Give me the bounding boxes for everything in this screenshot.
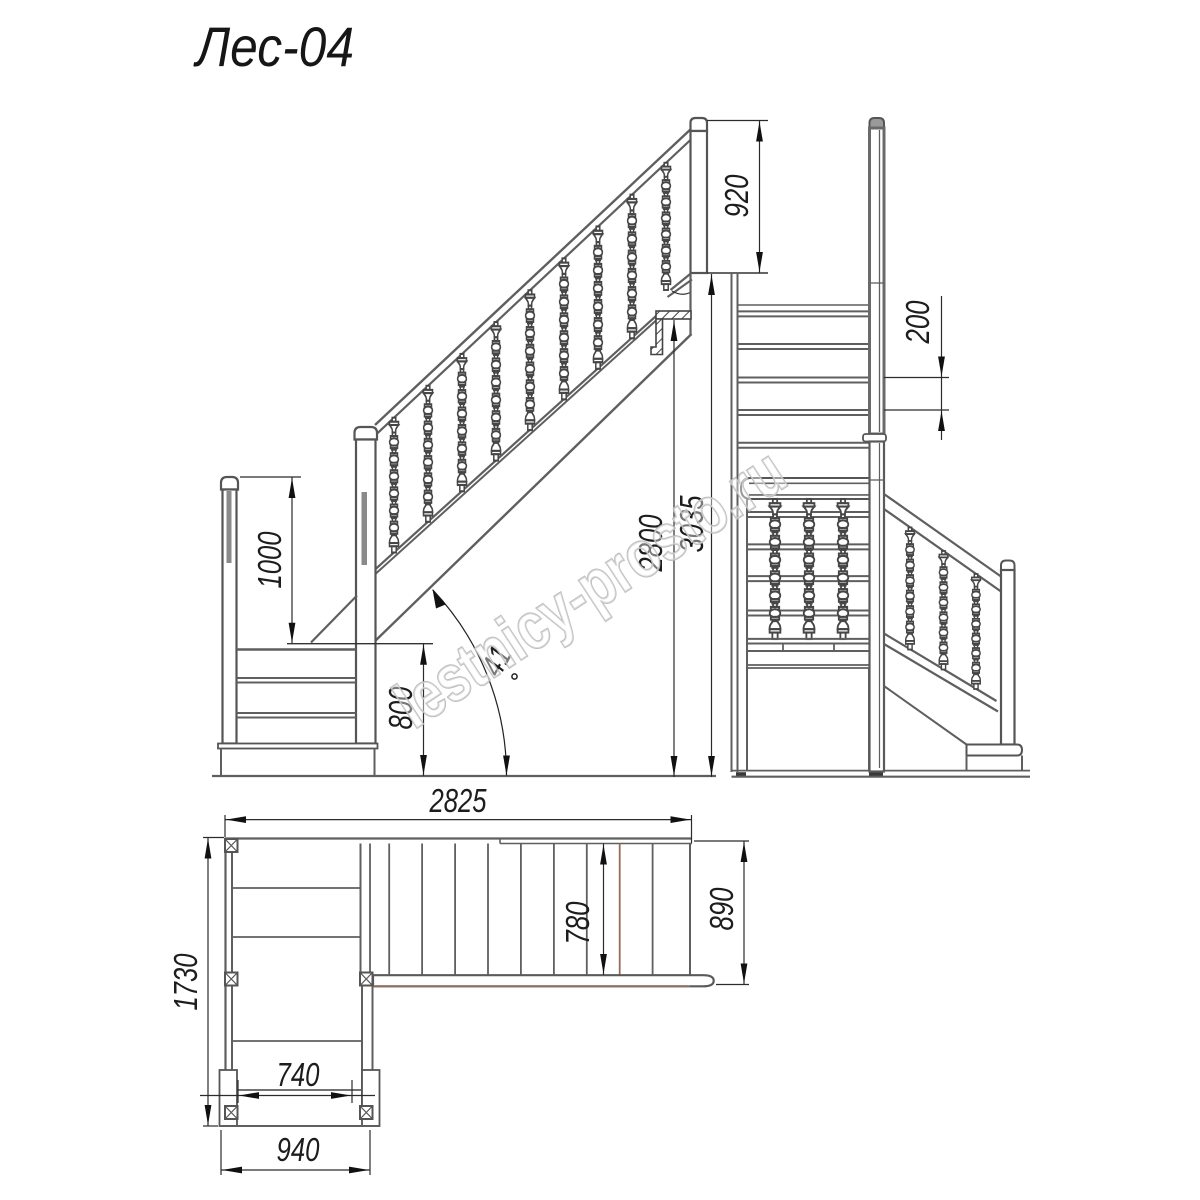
svg-text:890: 890 [703,887,740,931]
svg-text:920: 920 [718,174,755,218]
svg-text:200: 200 [899,300,936,344]
svg-text:940: 940 [277,1131,321,1168]
svg-text:1000: 1000 [251,531,288,588]
svg-text:Лес-04: Лес-04 [193,15,354,78]
svg-text:780: 780 [559,901,596,945]
svg-text:740: 740 [277,1056,321,1093]
svg-text:2825: 2825 [429,782,487,819]
svg-text:1730: 1730 [167,953,204,1010]
